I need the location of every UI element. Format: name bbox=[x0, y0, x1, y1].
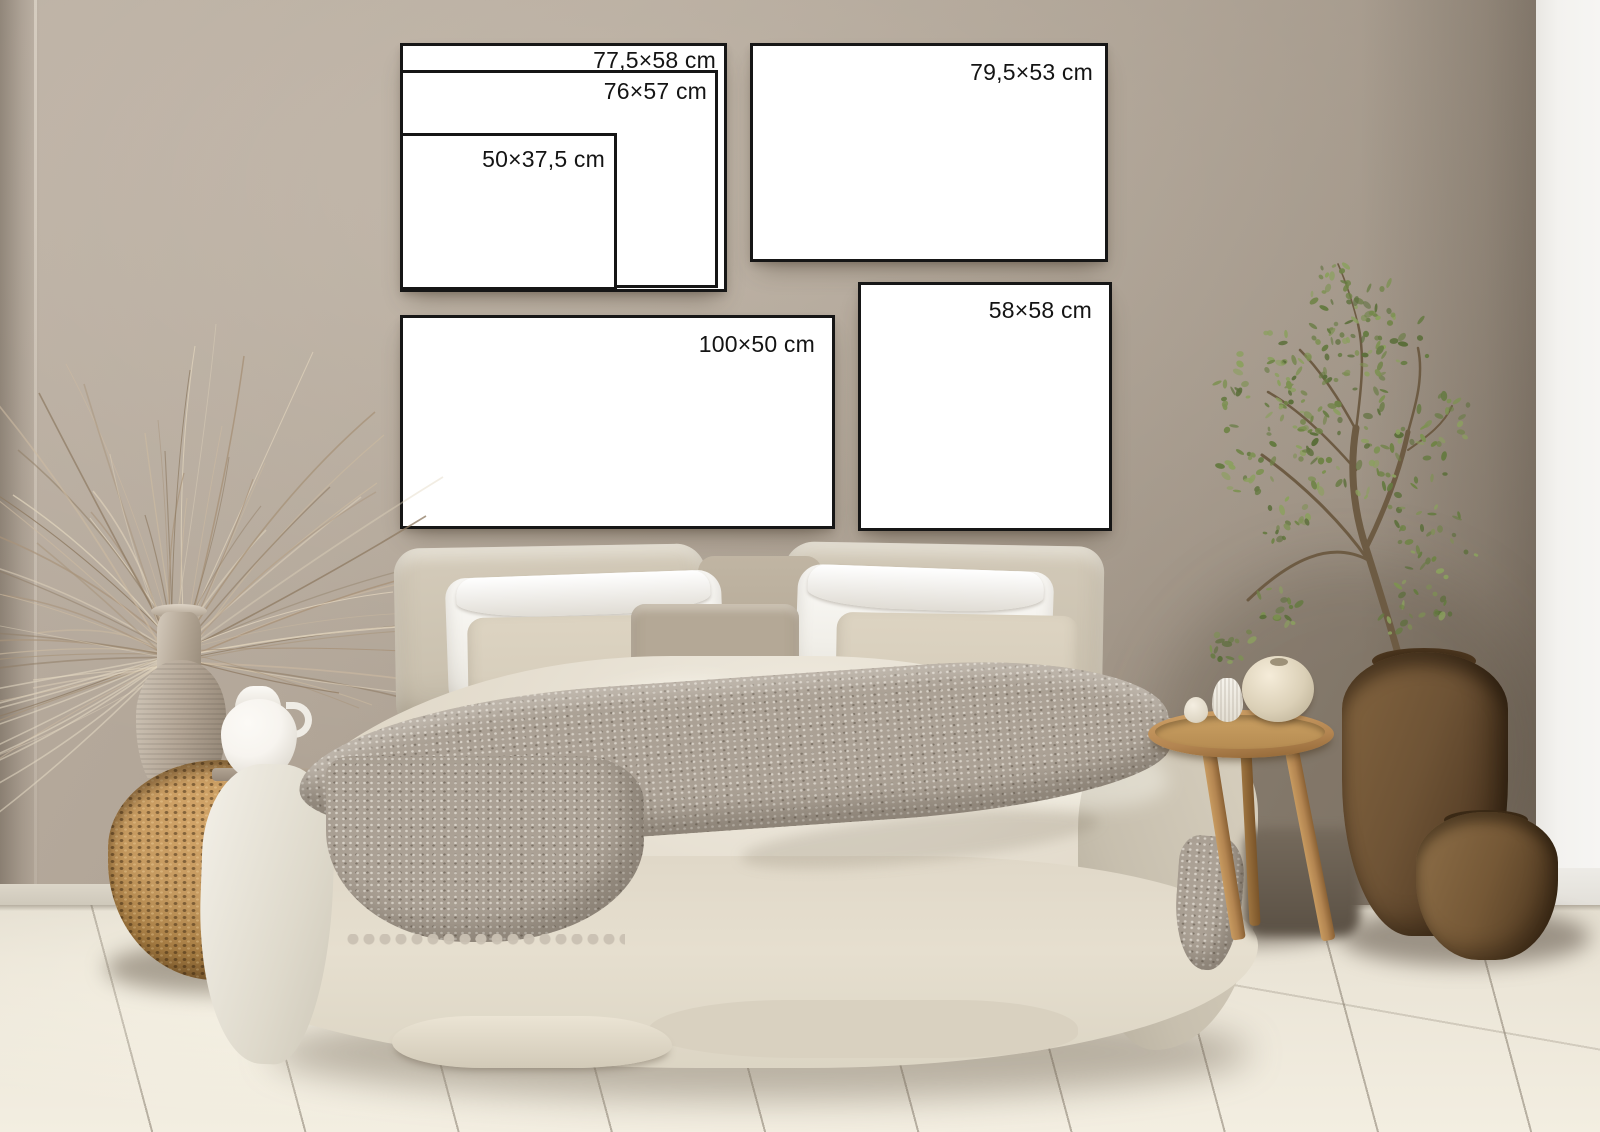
wooden-stool-table bbox=[1148, 710, 1334, 758]
frame-58x58: 58×58 cm bbox=[858, 282, 1112, 531]
bedroom-poster-size-mockup: 77,5×58 cm 76×57 cm 50×37,5 cm 79,5×53 c… bbox=[0, 0, 1600, 1132]
frame-100x50: 100×50 cm bbox=[400, 315, 835, 529]
duvet-hem-fold bbox=[648, 1000, 1078, 1058]
woven-floor-vase-small bbox=[1416, 812, 1558, 960]
duvet-hem-fold bbox=[392, 1016, 672, 1068]
frame-79-5x53: 79,5×53 cm bbox=[750, 43, 1108, 262]
mini-white-vase bbox=[1212, 678, 1243, 722]
size-label: 76×57 cm bbox=[604, 78, 707, 104]
round-ball-vase bbox=[1242, 656, 1314, 722]
white-wall-strip bbox=[1536, 0, 1600, 935]
frame-50x37-5: 50×37,5 cm bbox=[400, 133, 617, 290]
egg-decor bbox=[1184, 697, 1208, 723]
size-label: 79,5×53 cm bbox=[970, 59, 1093, 85]
size-label: 50×37,5 cm bbox=[482, 146, 605, 172]
size-label: 100×50 cm bbox=[699, 331, 815, 357]
size-label: 58×58 cm bbox=[989, 297, 1092, 323]
frame-77-5x58: 77,5×58 cm 76×57 cm 50×37,5 cm bbox=[400, 43, 727, 292]
